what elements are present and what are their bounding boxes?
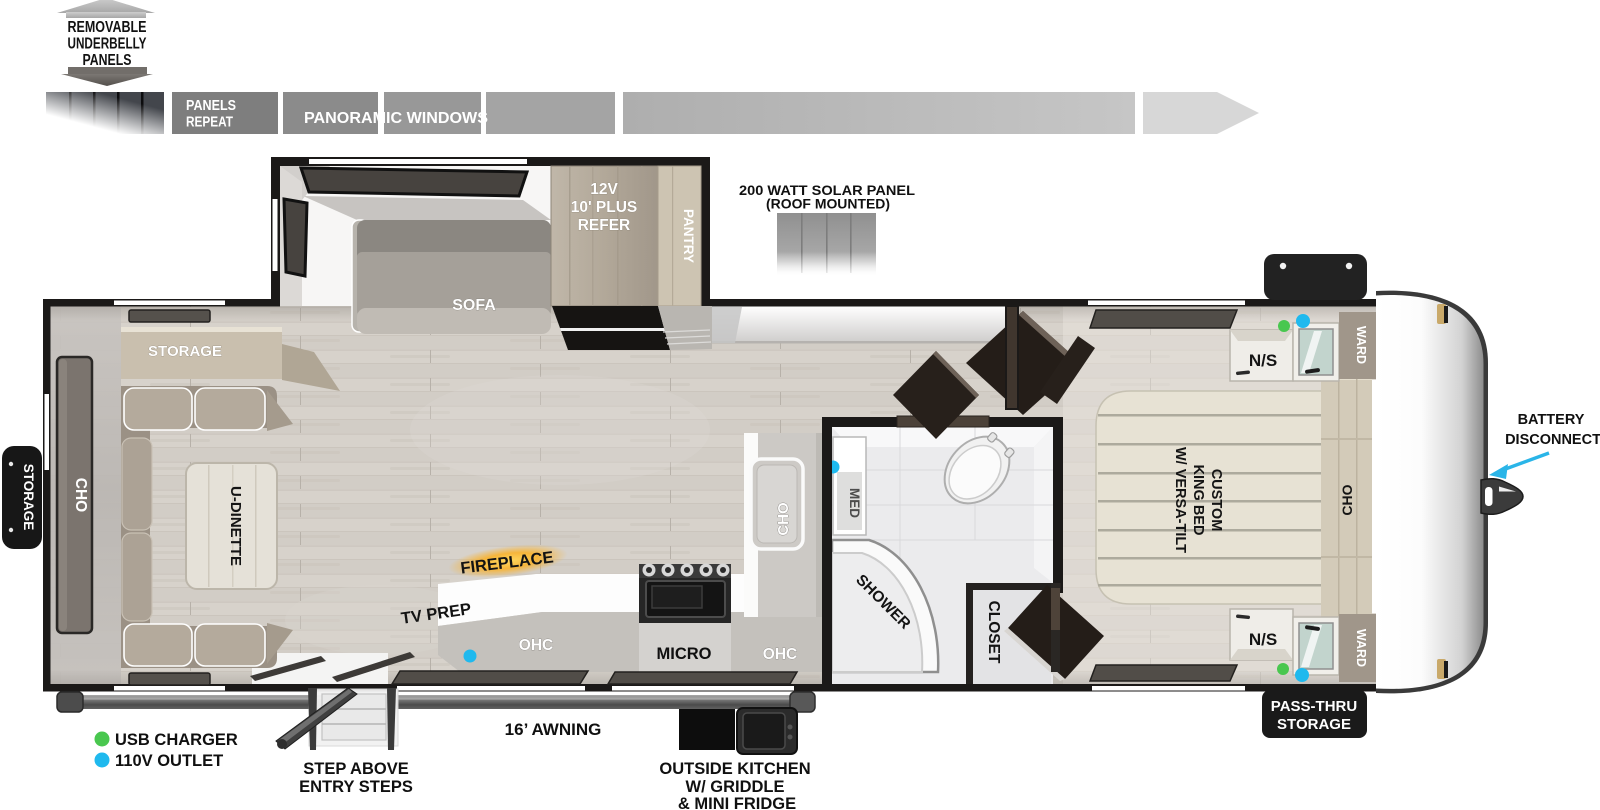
svg-text:USB CHARGER: USB CHARGER: [115, 731, 238, 749]
svg-text:STORAGE: STORAGE: [148, 343, 222, 360]
svg-text:MICRO: MICRO: [657, 645, 712, 663]
svg-text:N/S: N/S: [1249, 351, 1277, 370]
svg-text:STORAGE: STORAGE: [1277, 716, 1351, 733]
svg-text:STEP ABOVE: STEP ABOVE: [303, 760, 408, 778]
svg-text:WARD: WARD: [1354, 629, 1368, 667]
svg-text:REMOVABLE: REMOVABLE: [68, 19, 147, 36]
svg-text:UNDERBELLY: UNDERBELLY: [68, 36, 147, 53]
svg-text:(ROOF MOUNTED): (ROOF MOUNTED): [766, 197, 890, 212]
svg-text:BATTERY: BATTERY: [1518, 412, 1585, 428]
svg-text:REPEAT: REPEAT: [186, 115, 233, 131]
svg-text:CLOSET: CLOSET: [985, 601, 1002, 664]
svg-text:KING BED: KING BED: [1190, 465, 1206, 536]
svg-text:PANELS: PANELS: [83, 52, 132, 69]
svg-text:ENTRY STEPS: ENTRY STEPS: [299, 778, 413, 796]
svg-text:12V: 12V: [590, 181, 618, 198]
svg-text:U-DINETTE: U-DINETTE: [227, 486, 244, 566]
svg-text:W/ GRIDDLE: W/ GRIDDLE: [686, 778, 785, 796]
svg-text:REFER: REFER: [578, 217, 631, 234]
svg-text:16’ AWNING: 16’ AWNING: [505, 720, 602, 739]
svg-text:MED: MED: [847, 488, 862, 518]
svg-text:DISCONNECT: DISCONNECT: [1505, 432, 1600, 448]
svg-text:CHO: CHO: [1339, 484, 1355, 515]
svg-text:110V OUTLET: 110V OUTLET: [115, 752, 223, 770]
svg-text:10' PLUS: 10' PLUS: [571, 199, 638, 216]
svg-text:PANTRY: PANTRY: [681, 209, 696, 263]
svg-text:PASS-THRU: PASS-THRU: [1271, 698, 1357, 715]
svg-text:& MINI FRIDGE: & MINI FRIDGE: [678, 795, 796, 810]
svg-text:OHC: OHC: [763, 646, 797, 663]
svg-text:PANELS: PANELS: [186, 98, 236, 114]
svg-text:SOFA: SOFA: [452, 297, 496, 314]
svg-text:CHO: CHO: [72, 478, 89, 512]
svg-text:WARD: WARD: [1354, 326, 1368, 364]
svg-text:CUSTOM: CUSTOM: [1208, 469, 1224, 532]
svg-text:OUTSIDE KITCHEN: OUTSIDE KITCHEN: [659, 760, 810, 778]
svg-text:OHC: OHC: [519, 637, 553, 654]
svg-text:CHO: CHO: [775, 502, 792, 536]
svg-text:PANORAMIC WINDOWS: PANORAMIC WINDOWS: [304, 110, 488, 127]
svg-text:STORAGE: STORAGE: [21, 464, 36, 531]
svg-text:W/ VERSA-TILT: W/ VERSA-TILT: [1172, 447, 1188, 553]
svg-text:N/S: N/S: [1249, 630, 1277, 649]
